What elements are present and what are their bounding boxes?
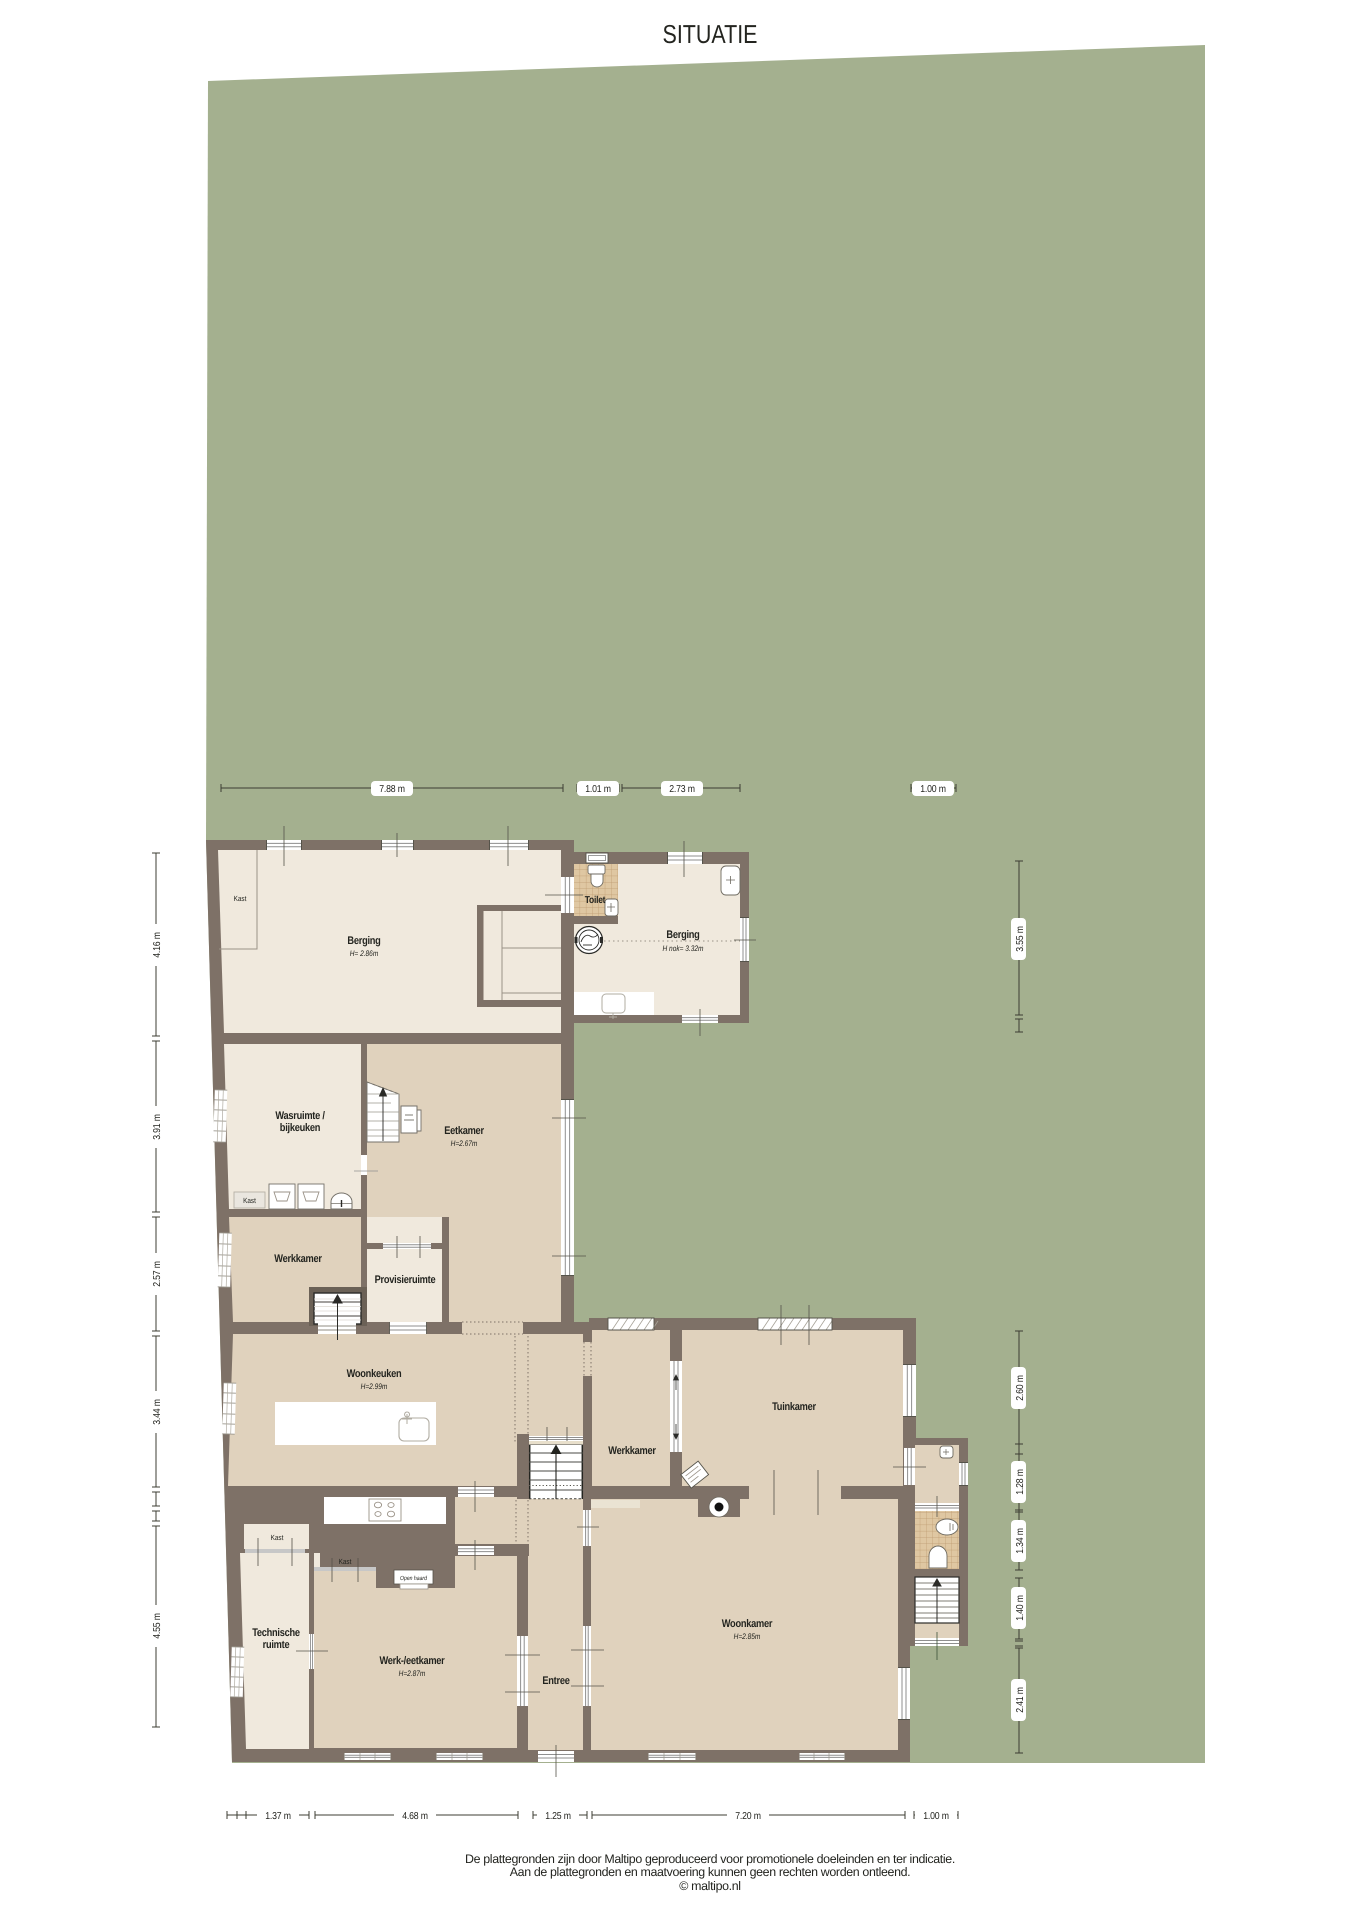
svg-text:4.55 m: 4.55 m — [152, 1613, 163, 1639]
svg-text:Aan de plattegronden en maatvo: Aan de plattegronden en maatvoering kunn… — [510, 1865, 911, 1879]
svg-text:3.91 m: 3.91 m — [152, 1114, 163, 1140]
svg-text:Eetkamer: Eetkamer — [444, 1125, 484, 1137]
svg-text:H=2.85m: H=2.85m — [734, 1632, 761, 1641]
svg-text:Werk-/eetkamer: Werk-/eetkamer — [379, 1655, 445, 1667]
svg-text:1.28 m: 1.28 m — [1015, 1469, 1026, 1495]
svg-text:Kast: Kast — [339, 1557, 353, 1566]
svg-text:H=2.87m: H=2.87m — [399, 1669, 426, 1678]
svg-text:1.00 m: 1.00 m — [920, 784, 946, 795]
svg-text:1.00 m: 1.00 m — [923, 1811, 949, 1822]
svg-text:2.60 m: 2.60 m — [1015, 1375, 1026, 1401]
svg-text:© maltipo.nl: © maltipo.nl — [679, 1879, 740, 1893]
svg-text:1.25 m: 1.25 m — [545, 1811, 571, 1822]
svg-text:1.40 m: 1.40 m — [1015, 1595, 1026, 1621]
svg-text:H= 2.86m: H= 2.86m — [350, 949, 379, 958]
svg-text:Wasruimte /: Wasruimte / — [275, 1110, 325, 1122]
svg-text:Berging: Berging — [347, 935, 380, 947]
svg-text:H=2.99m: H=2.99m — [361, 1382, 388, 1391]
svg-text:2.41 m: 2.41 m — [1015, 1687, 1026, 1713]
svg-text:2.57 m: 2.57 m — [152, 1261, 163, 1287]
svg-text:4.16 m: 4.16 m — [152, 932, 163, 958]
svg-text:Open haard: Open haard — [400, 1575, 427, 1582]
svg-text:Toilet: Toilet — [585, 895, 606, 906]
svg-text:7.20 m: 7.20 m — [735, 1811, 761, 1822]
svg-text:SITUATIE: SITUATIE — [663, 19, 758, 49]
svg-text:De plattegronden zijn door Mal: De plattegronden zijn door Maltipo gepro… — [465, 1852, 955, 1866]
svg-text:1.37 m: 1.37 m — [265, 1811, 291, 1822]
svg-text:Provisieruimte: Provisieruimte — [375, 1274, 436, 1286]
svg-text:7.88 m: 7.88 m — [379, 784, 405, 795]
svg-text:Technische: Technische — [252, 1627, 300, 1639]
svg-text:3.55 m: 3.55 m — [1015, 926, 1026, 952]
svg-text:Kast: Kast — [271, 1533, 285, 1542]
svg-text:Kast: Kast — [234, 894, 248, 903]
svg-text:1.01 m: 1.01 m — [585, 784, 611, 795]
svg-text:4.68 m: 4.68 m — [402, 1811, 428, 1822]
svg-text:2.73 m: 2.73 m — [669, 784, 695, 795]
svg-text:Woonkeuken: Woonkeuken — [347, 1368, 402, 1380]
svg-text:H nok= 3.32m: H nok= 3.32m — [663, 944, 704, 953]
svg-text:Berging: Berging — [666, 929, 699, 941]
svg-text:Kast: Kast — [243, 1196, 257, 1205]
svg-text:Tuinkamer: Tuinkamer — [772, 1401, 817, 1413]
svg-text:Entree: Entree — [542, 1675, 569, 1687]
svg-text:1.34 m: 1.34 m — [1015, 1528, 1026, 1554]
svg-text:bijkeuken: bijkeuken — [280, 1122, 321, 1134]
svg-text:Werkkamer: Werkkamer — [608, 1445, 656, 1457]
svg-text:Woonkamer: Woonkamer — [722, 1618, 773, 1630]
svg-text:3.44 m: 3.44 m — [152, 1399, 163, 1425]
svg-text:ruimte: ruimte — [263, 1639, 290, 1651]
svg-text:Werkkamer: Werkkamer — [274, 1253, 322, 1265]
svg-text:H=2.67m: H=2.67m — [451, 1139, 478, 1148]
